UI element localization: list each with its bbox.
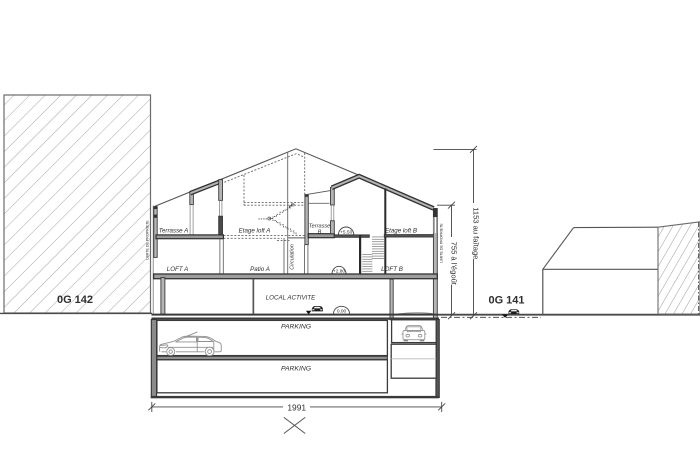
svg-text:B: B [318, 229, 322, 235]
svg-text:LOCAL ACTIVITE: LOCAL ACTIVITE [266, 295, 316, 302]
svg-text:Patio A: Patio A [250, 266, 270, 273]
svg-text:0G 141: 0G 141 [488, 295, 524, 307]
svg-text:1991: 1991 [287, 402, 306, 412]
svg-text:Etage loft A: Etage loft A [239, 227, 271, 234]
svg-text:755 à l'égoût: 755 à l'égoût [450, 242, 459, 286]
svg-text:0G 142: 0G 142 [57, 294, 93, 306]
svg-text:PARKING: PARKING [281, 366, 311, 373]
svg-text:Terrasse A: Terrasse A [159, 227, 188, 234]
svg-text:PARKING: PARKING [281, 324, 311, 331]
svg-text:1153 au faîtage: 1153 au faîtage [472, 207, 481, 259]
svg-text:LIMITE DE PROPRIETE: LIMITE DE PROPRIETE [146, 220, 150, 260]
svg-text:LOFT A: LOFT A [167, 266, 188, 273]
svg-text:LIMITE DE PROPRIETE: LIMITE DE PROPRIETE [440, 223, 444, 263]
svg-text:Circulation: Circulation [290, 244, 296, 269]
svg-text:Etage loft B: Etage loft B [385, 227, 417, 234]
svg-text:LOFT B: LOFT B [381, 266, 403, 273]
